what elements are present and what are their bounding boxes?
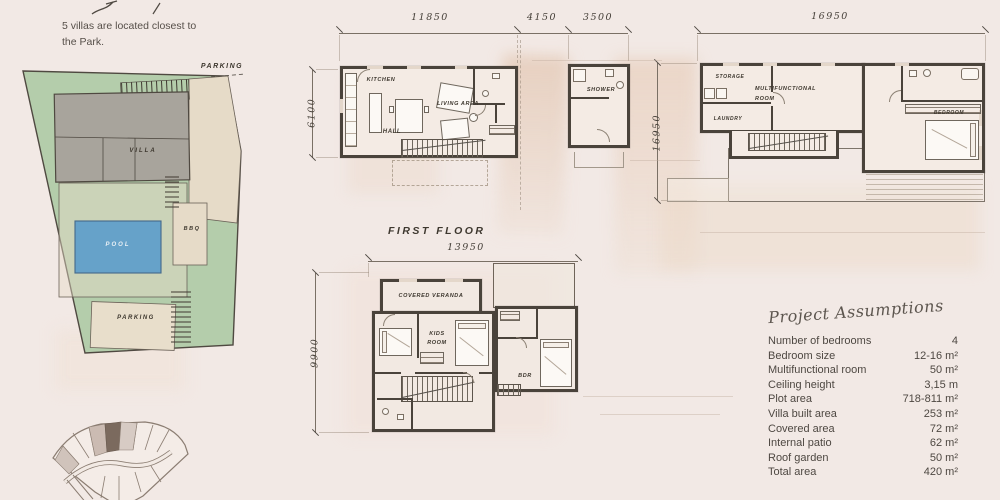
row-value: 50 m²	[930, 451, 958, 466]
ff-dim-13950: 13950	[436, 243, 496, 253]
bed-throw-line	[459, 337, 483, 356]
shower-annex: SHOWER	[568, 64, 630, 148]
row-value: 253 m²	[924, 407, 958, 422]
ff-outdoor-steps	[497, 384, 521, 396]
stair-direction-line	[402, 382, 475, 398]
upper-plan-stair-hall	[729, 131, 839, 159]
kids-room-label-1: KIDS	[423, 331, 451, 338]
ext-line	[985, 35, 986, 61]
table-row: Ceiling height3,15 m	[768, 378, 958, 393]
deck-boards	[866, 170, 983, 200]
row-label: Covered area	[768, 422, 835, 437]
sofa	[436, 82, 474, 114]
bed	[540, 339, 572, 387]
ff-dim-9900: 9900	[310, 329, 320, 377]
dim-tick	[575, 254, 582, 261]
partition-wall	[479, 372, 492, 374]
table-row: Total area420 m²	[768, 465, 958, 480]
gf-dim-4150: 4150	[517, 13, 567, 23]
kids-room-label-2: ROOM	[423, 340, 451, 347]
gf-stairs	[401, 139, 483, 158]
ext-line	[319, 432, 369, 433]
row-label: Ceiling height	[768, 378, 835, 393]
dim-tick	[514, 26, 521, 33]
sink-icon	[492, 73, 500, 79]
row-value: 62 m²	[930, 436, 958, 451]
construction-line	[630, 160, 700, 161]
row-value: 718-811 m²	[903, 392, 958, 407]
gf-dim-6100: 6100	[307, 91, 317, 135]
toilet-icon	[923, 69, 931, 77]
bed-throw-line	[387, 333, 410, 348]
sink-icon	[605, 69, 614, 77]
partition-wall	[417, 314, 419, 358]
toilet-icon	[382, 408, 389, 415]
ext-line	[316, 157, 338, 158]
multifunctional-label-1: MULTIFUNCTIONAL	[755, 86, 855, 93]
parking-bottom-area	[90, 302, 176, 351]
annex-porch	[574, 152, 624, 168]
row-label: Villa built area	[768, 407, 837, 422]
site-note: 5 villas are located closest to the Park…	[62, 18, 196, 51]
ext-line	[368, 263, 369, 277]
partition-wall	[495, 105, 497, 123]
ff-patio-outline	[493, 263, 575, 308]
dim-tick	[625, 26, 632, 33]
villa-label: VILLA	[113, 148, 173, 156]
partition-wall	[375, 372, 401, 374]
row-label: Roof garden	[768, 451, 829, 466]
cabinet	[489, 125, 515, 135]
up-dim-16950-top: 16950	[800, 12, 860, 22]
construction-line	[700, 232, 985, 233]
partition-wall	[415, 372, 467, 374]
window	[407, 66, 421, 69]
multifunctional-label-2: ROOM	[755, 96, 855, 103]
bed	[379, 328, 412, 356]
gf-dim-11850: 11850	[395, 13, 465, 23]
window	[399, 279, 417, 282]
shower-label: SHOWER	[579, 87, 623, 94]
window	[455, 66, 467, 69]
pillow	[970, 123, 976, 157]
upper-plan-bedroom-wing: BEDROOM	[862, 63, 985, 173]
site-note-line1: 5 villas are located closest to	[62, 18, 196, 34]
partition-wall	[771, 106, 773, 130]
bbq-area	[173, 203, 207, 265]
bed	[455, 320, 489, 366]
ext-line	[661, 63, 697, 64]
row-label: Multifunctional room	[768, 363, 866, 378]
bed	[925, 120, 979, 160]
hall-label: HALL	[377, 129, 407, 137]
hatch-mid	[165, 173, 179, 209]
covered-veranda: COVERED VERANDA	[380, 279, 482, 315]
first-floor-building: KIDS ROOM	[372, 311, 495, 432]
upper-plan-main-band: STORAGE LAUNDRY MULTIFUNCTIONAL ROOM	[700, 63, 865, 133]
sink-icon	[397, 414, 404, 420]
row-value: 72 m²	[930, 422, 958, 437]
dim-tick	[565, 26, 572, 33]
site-note-line2: the Park.	[62, 34, 196, 50]
kitchen-counter	[345, 73, 357, 147]
villa-plan-sheet: 5 villas are located closest to the Park…	[0, 0, 1000, 500]
row-value: 50 m²	[930, 363, 958, 378]
table-row: Plot area718-811 m²	[768, 392, 958, 407]
window	[821, 63, 835, 66]
table-row: Covered area72 m²	[768, 422, 958, 437]
partition-wall	[536, 309, 538, 339]
first-floor-title: FIRST FLOOR	[388, 225, 486, 237]
cutoff-annotation-strokes	[70, 0, 170, 18]
ext-line	[697, 35, 698, 61]
ff-bathroom	[377, 398, 413, 429]
wing-bathroom	[901, 66, 982, 102]
gf-dim-3500: 3500	[570, 13, 626, 23]
location-key-map	[45, 420, 195, 500]
washer-icon	[704, 88, 715, 99]
sink-icon	[909, 70, 917, 77]
pillow	[543, 342, 569, 348]
parking-bottom-label: PARKING	[96, 315, 176, 323]
window	[340, 99, 343, 113]
pool-label: POOL	[88, 242, 148, 250]
table-row: Villa built area253 m²	[768, 407, 958, 422]
row-value: 12-16 m²	[914, 349, 958, 364]
table-row: Internal patio62 m²	[768, 436, 958, 451]
ext-line	[316, 69, 338, 70]
table-row: Multifunctional room50 m²	[768, 363, 958, 378]
row-value: 3,15 m	[924, 378, 958, 393]
villa-footprint	[54, 92, 190, 182]
bdr-label: BDR	[510, 373, 540, 380]
pillow	[458, 323, 486, 329]
door-arc	[597, 129, 610, 142]
gf-dim-line-top	[339, 33, 628, 34]
ext-line	[568, 35, 569, 59]
ff-dim-line-top	[368, 261, 578, 262]
gf-bathroom	[473, 69, 505, 105]
chair	[389, 106, 394, 113]
door-arc	[889, 90, 901, 102]
up-dim-16950-left: 16950	[652, 109, 662, 157]
row-value: 420 m²	[924, 465, 958, 480]
terrace-porch-outline	[667, 178, 729, 202]
window	[979, 146, 982, 160]
door-arc	[383, 314, 395, 326]
door-arc	[773, 92, 785, 104]
construction-line	[520, 40, 521, 210]
table-row: Bedroom size12-16 m²	[768, 349, 958, 364]
bbq-label: BBQ	[175, 226, 209, 233]
wardrobe	[420, 352, 444, 364]
ext-line	[339, 35, 340, 61]
upper-stairs	[748, 133, 826, 151]
driveway-area	[189, 76, 241, 223]
dim-tick	[336, 26, 343, 33]
gf-porch-outline	[392, 160, 488, 186]
parking-top-label: PARKING	[197, 63, 247, 72]
up-dim-line-top	[697, 33, 985, 34]
partition-wall	[571, 97, 609, 99]
toilet-icon	[482, 90, 489, 97]
washer-icon	[716, 88, 727, 99]
ext-line	[517, 35, 518, 63]
map-highlighted-plot	[105, 422, 121, 452]
ext-line	[628, 35, 629, 61]
laundry-label: LAUNDRY	[705, 116, 751, 122]
stair-direction-line	[749, 135, 828, 149]
storage-label: STORAGE	[705, 74, 755, 80]
pillow	[382, 331, 387, 353]
covered-veranda-label: COVERED VERANDA	[383, 293, 479, 300]
dining-table	[395, 99, 423, 133]
bathtub-icon	[961, 68, 979, 80]
bed-throw-line	[932, 129, 968, 149]
assumptions-title: Project Assumptions	[768, 296, 945, 327]
shower-tray-icon	[573, 69, 586, 82]
row-label: Number of bedrooms	[768, 334, 871, 349]
row-label: Internal patio	[768, 436, 832, 451]
window	[723, 63, 739, 66]
sofa	[440, 118, 470, 141]
table-row: Roof garden50 m²	[768, 451, 958, 466]
assumptions-table: Number of bedrooms4 Bedroom size12-16 m²…	[768, 334, 958, 480]
construction-line	[583, 396, 733, 397]
window	[445, 279, 463, 282]
row-label: Plot area	[768, 392, 812, 407]
wardrobe	[500, 311, 520, 321]
construction-line	[600, 414, 720, 415]
table-row: Number of bedrooms4	[768, 334, 958, 349]
door-arc	[357, 69, 370, 82]
ext-line	[319, 272, 369, 273]
dim-tick	[982, 26, 989, 33]
construction-line	[532, 60, 662, 61]
dim-tick	[365, 254, 372, 261]
bed-throw-line	[544, 356, 566, 375]
row-label: Bedroom size	[768, 349, 835, 364]
kitchen-island	[369, 93, 382, 133]
stair-direction-line	[402, 140, 485, 151]
bedroom-label: BEDROOM	[919, 110, 979, 116]
dim-tick	[694, 26, 701, 33]
row-value: 4	[952, 334, 958, 349]
living-area-label: LIVING AREA	[429, 101, 487, 108]
row-label: Total area	[768, 465, 816, 480]
door-arc	[463, 372, 474, 383]
window	[763, 63, 777, 66]
ff-bedroom-wing: BDR	[495, 306, 578, 392]
ground-floor-building: KITCHEN LIVING AREA HALL	[340, 66, 518, 158]
